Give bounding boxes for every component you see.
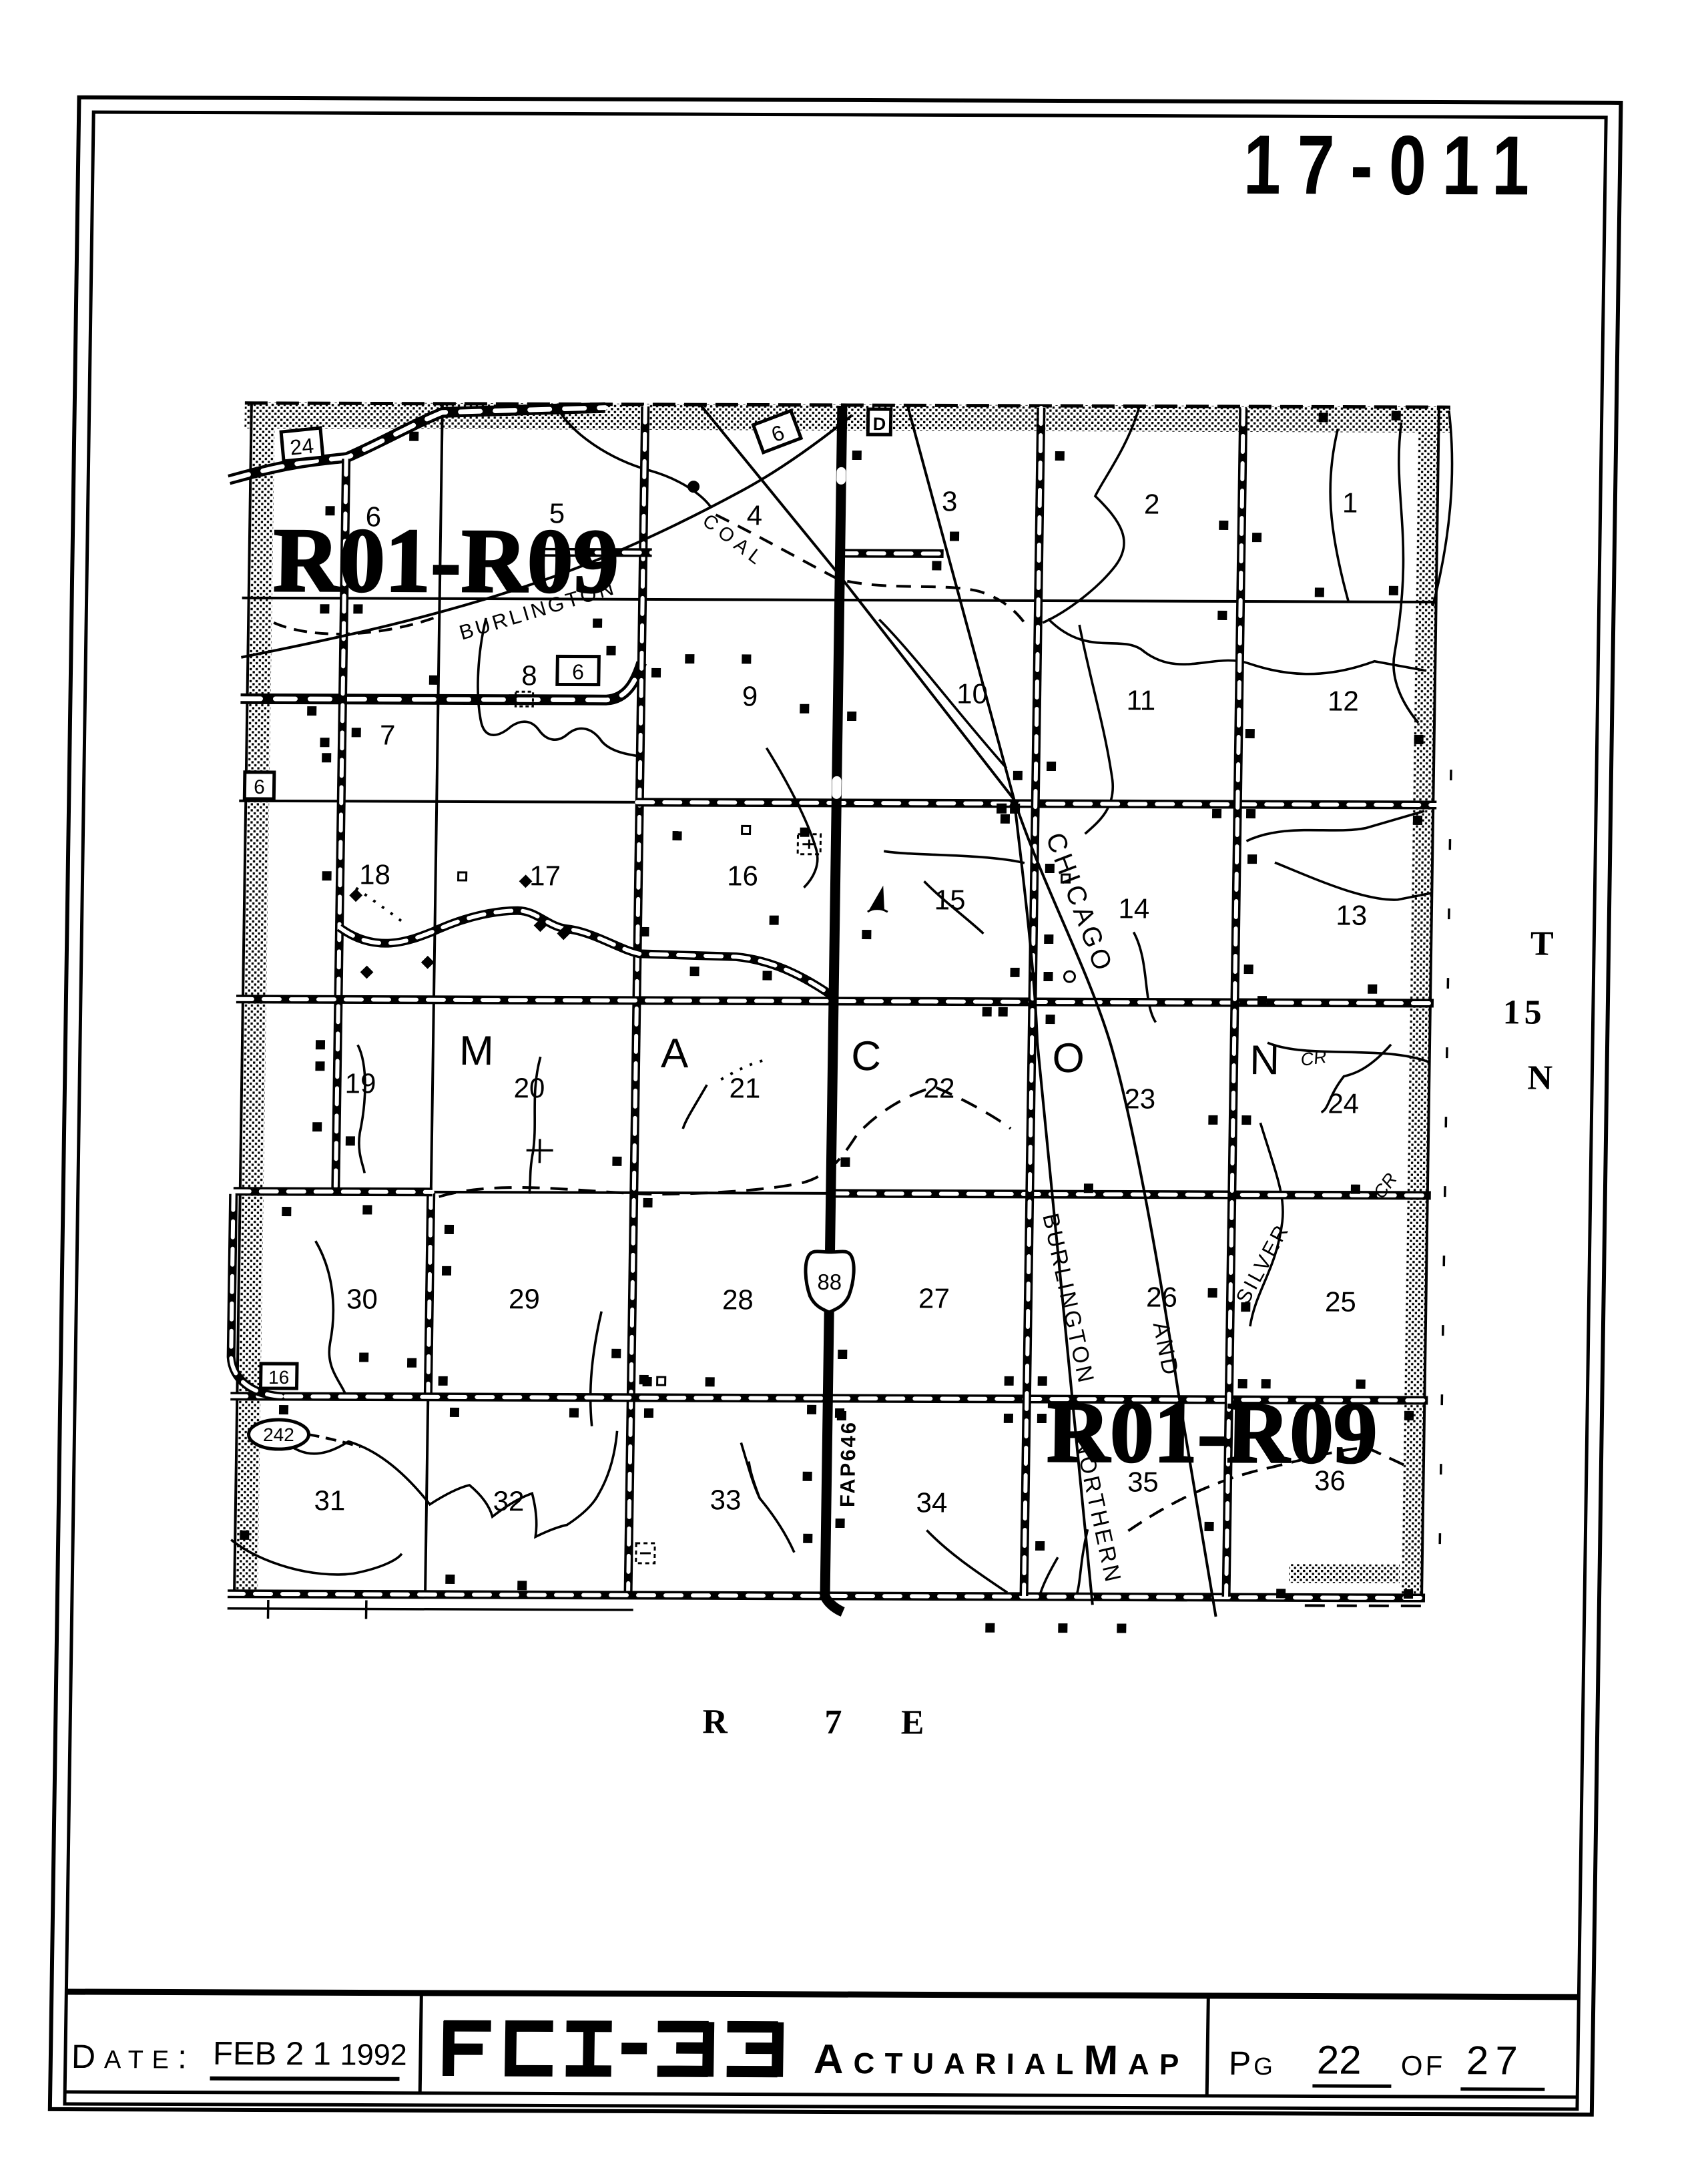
svg-text:10: 10 — [956, 678, 988, 710]
svg-text:7: 7 — [824, 1703, 842, 1741]
svg-text:13: 13 — [1336, 900, 1367, 931]
svg-text:17-011: 17-011 — [1243, 118, 1546, 213]
svg-text:CHICAGO: CHICAGO — [1040, 828, 1119, 977]
svg-text:FAP646: FAP646 — [836, 1420, 860, 1507]
svg-text:4: 4 — [746, 499, 762, 531]
svg-text:3: 3 — [942, 485, 958, 517]
svg-text:27: 27 — [1466, 2038, 1524, 2083]
svg-text:6: 6 — [572, 660, 584, 684]
svg-text:E: E — [901, 1703, 925, 1741]
svg-text:12: 12 — [1328, 685, 1359, 716]
svg-text:15: 15 — [934, 884, 965, 915]
svg-text:6: 6 — [254, 776, 265, 798]
svg-text:14: 14 — [1118, 892, 1149, 924]
svg-text:34: 34 — [916, 1486, 947, 1518]
svg-text:7: 7 — [380, 720, 396, 751]
svg-text:M: M — [459, 1028, 495, 1074]
svg-text:18: 18 — [359, 858, 390, 890]
svg-text:N: N — [1527, 1059, 1552, 1097]
svg-text:28: 28 — [722, 1284, 754, 1315]
svg-text:A: A — [661, 1031, 689, 1077]
svg-text:24: 24 — [289, 433, 315, 459]
svg-text:32: 32 — [493, 1485, 524, 1517]
svg-text:19: 19 — [344, 1067, 376, 1099]
svg-text:24: 24 — [1328, 1088, 1359, 1119]
svg-text:31: 31 — [314, 1484, 345, 1516]
svg-text:C: C — [851, 1033, 882, 1079]
svg-text:R01-R09: R01-R09 — [1047, 1384, 1378, 1482]
svg-text:N: N — [1249, 1037, 1280, 1083]
svg-text:20: 20 — [513, 1072, 545, 1103]
svg-text:9: 9 — [742, 680, 758, 712]
svg-text:30: 30 — [346, 1283, 378, 1314]
svg-text:11: 11 — [1126, 684, 1155, 716]
svg-text:T: T — [1530, 925, 1554, 963]
svg-text:27: 27 — [918, 1282, 950, 1314]
svg-text:CR: CR — [1300, 1047, 1328, 1070]
svg-text:15: 15 — [1502, 993, 1546, 1031]
svg-text:21: 21 — [729, 1072, 760, 1103]
svg-text:23: 23 — [1124, 1083, 1155, 1114]
svg-text:R: R — [702, 1703, 729, 1741]
svg-text:DATE:: DATE: — [71, 2038, 196, 2076]
svg-text:26: 26 — [1146, 1282, 1177, 1313]
svg-text:8: 8 — [521, 659, 537, 691]
svg-text:16: 16 — [268, 1367, 290, 1388]
svg-text:D: D — [873, 414, 886, 434]
svg-text:242: 242 — [263, 1424, 294, 1445]
svg-text:16: 16 — [727, 860, 758, 891]
svg-text:ACTUARIALMAP: ACTUARIALMAP — [813, 2036, 1189, 2084]
svg-text:1: 1 — [1342, 487, 1358, 519]
svg-text:AND: AND — [1148, 1320, 1184, 1380]
svg-text:SILVER: SILVER — [1231, 1219, 1294, 1308]
svg-text:R01-R09: R01-R09 — [272, 509, 619, 612]
svg-text:FEB 2 1 1992: FEB 2 1 1992 — [213, 2036, 408, 2073]
svg-text:88: 88 — [817, 1270, 842, 1294]
svg-text:33: 33 — [710, 1484, 741, 1515]
svg-text:O: O — [1052, 1035, 1085, 1081]
svg-text:17: 17 — [529, 860, 561, 891]
svg-text:22: 22 — [1316, 2038, 1362, 2083]
svg-text:25: 25 — [1325, 1286, 1356, 1318]
svg-text:PG: PG — [1228, 2044, 1276, 2082]
svg-text:29: 29 — [509, 1283, 540, 1314]
svg-text:OF: OF — [1401, 2050, 1446, 2081]
svg-text:22: 22 — [923, 1072, 954, 1103]
svg-text:2: 2 — [1144, 489, 1160, 520]
